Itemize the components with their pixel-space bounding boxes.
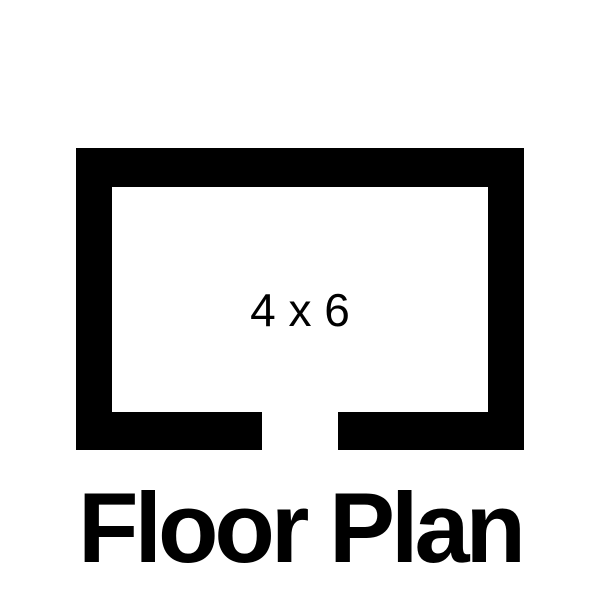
floor-plan-icon: 4 x 6 [76, 148, 524, 450]
wall-top [76, 148, 524, 187]
wall-bottom-right-segment [338, 412, 524, 450]
room-dimensions-label: 4 x 6 [250, 283, 350, 337]
wall-right [488, 148, 524, 450]
floor-plan-graphic: 4 x 6 Floor Plan [0, 0, 600, 600]
wall-left [76, 148, 112, 450]
wall-bottom-left-segment [76, 412, 262, 450]
page-title: Floor Plan [78, 478, 522, 577]
